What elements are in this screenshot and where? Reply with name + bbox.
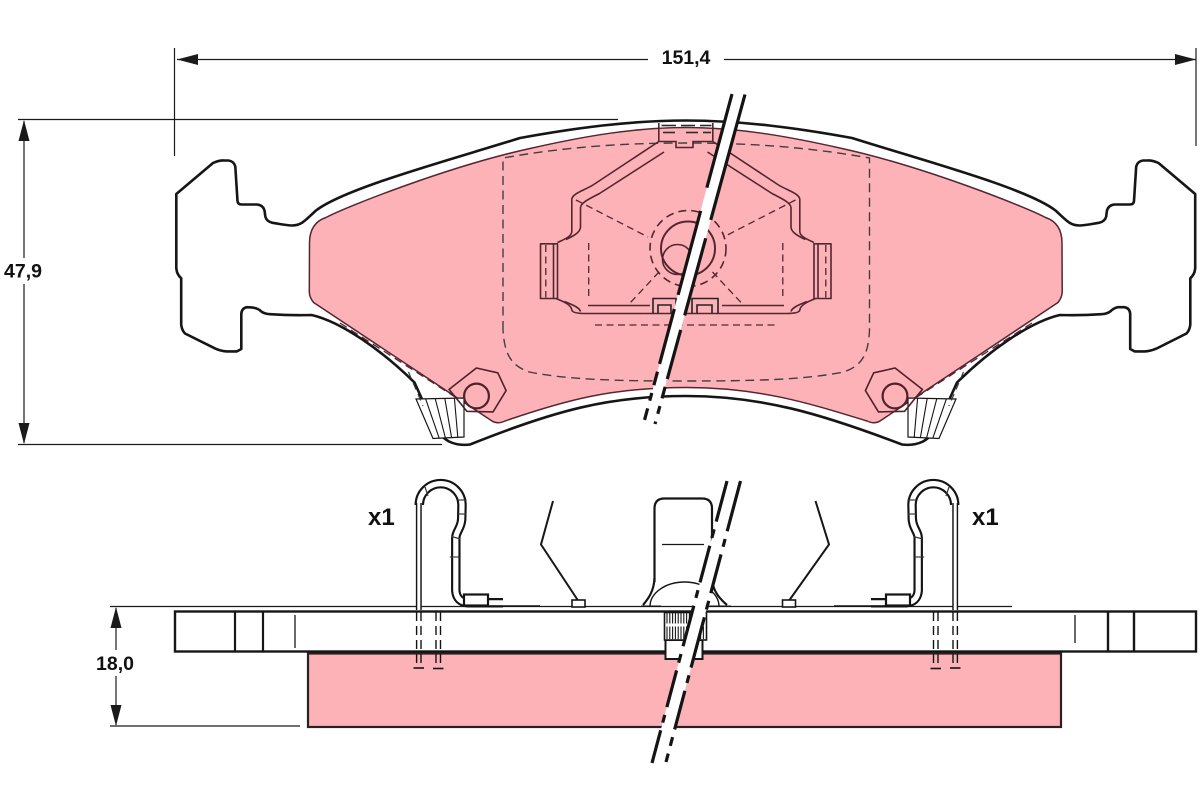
svg-text:x1: x1 bbox=[368, 504, 395, 531]
svg-text:151,4: 151,4 bbox=[662, 47, 711, 69]
svg-text:18,0: 18,0 bbox=[96, 653, 134, 675]
svg-text:x1: x1 bbox=[972, 504, 999, 531]
svg-text:47,9: 47,9 bbox=[4, 261, 42, 283]
